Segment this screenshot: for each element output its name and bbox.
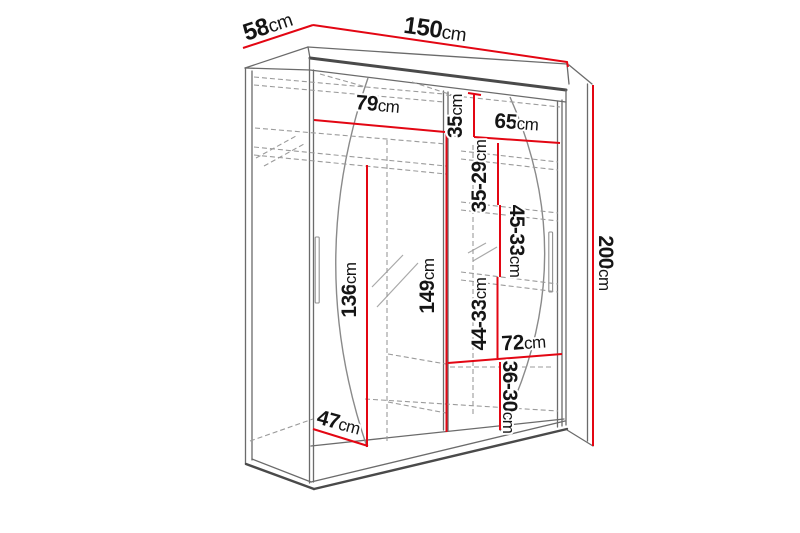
dim-label-total-height: 200cm xyxy=(594,235,617,291)
dim-label-left-inner-height: 136cm xyxy=(338,262,361,318)
dim-line-inner-width-left xyxy=(314,120,445,132)
left-door-handle xyxy=(315,237,319,303)
dim-label-inner-width-right: 65cm xyxy=(494,110,540,136)
dim-label-right-gap-2: 45-33cm xyxy=(505,205,528,278)
dim-label-right-gap-4: 36-30cm xyxy=(498,361,521,434)
dim-label-right-gap-1: 35-29cm xyxy=(468,139,491,212)
dim-label-middle-inner-height: 149cm xyxy=(416,258,439,314)
dim-line-right-top-height xyxy=(468,93,481,137)
dim-label-top-width: 150cm xyxy=(402,12,468,47)
wardrobe-dimension-diagram: 58cm 150cm 79cm 35cm 65cm 35-29cm 45-33c… xyxy=(0,0,800,533)
dim-label-bottom-width-right: 72cm xyxy=(501,329,547,355)
diagram-canvas: 58cm 150cm 79cm 35cm 65cm 35-29cm 45-33c… xyxy=(0,0,800,533)
dim-label-right-gap-3: 44-33cm xyxy=(468,277,491,350)
dim-label-inner-width-left: 79cm xyxy=(355,91,401,118)
dimension-labels: 58cm 150cm 79cm 35cm 65cm 35-29cm 45-33c… xyxy=(240,5,617,439)
dim-label-right-top-height: 35cm xyxy=(444,94,467,138)
